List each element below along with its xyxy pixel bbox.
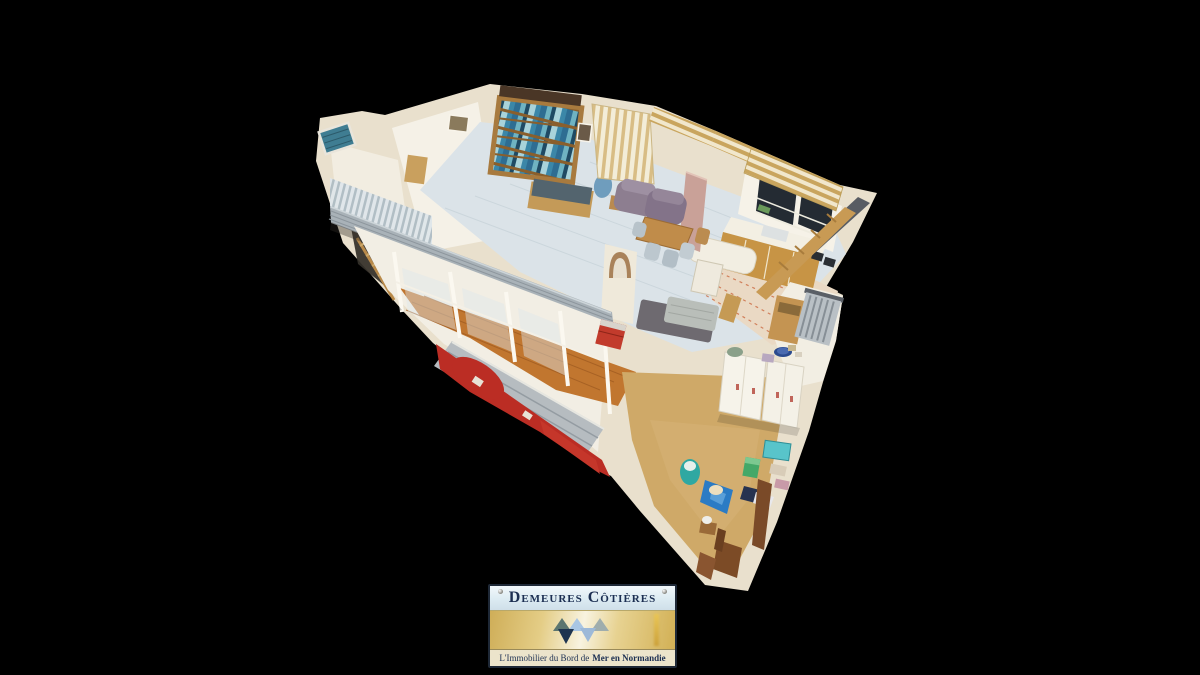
agency-watermark-plaque: Demeures Côtières L'Immobilier du Bord d… [488, 584, 677, 668]
plaque-header: Demeures Côtières [490, 586, 675, 611]
dollhouse-3d-view[interactable] [0, 0, 1200, 675]
wall-picture [577, 123, 592, 141]
screenshot-canvas: Demeures Côtières L'Immobilier du Bord d… [0, 0, 1200, 675]
screw-icon [498, 589, 503, 594]
agency-name: Demeures Côtières [509, 590, 656, 606]
aqua-box [763, 440, 791, 460]
plaque-body [490, 611, 675, 649]
tagline-prefix: L'Immobilier du Bord de [499, 654, 589, 663]
agency-triangles-logo-icon [551, 615, 615, 645]
plaque-tagline: L'Immobilier du Bord de Mer en Normandie [490, 649, 675, 666]
gold-reflection [654, 614, 659, 646]
striped-curtain [592, 104, 654, 184]
tagline-emphasis: Mer en Normandie [592, 654, 665, 663]
bookshelf [487, 85, 585, 185]
screw-icon [662, 589, 667, 594]
